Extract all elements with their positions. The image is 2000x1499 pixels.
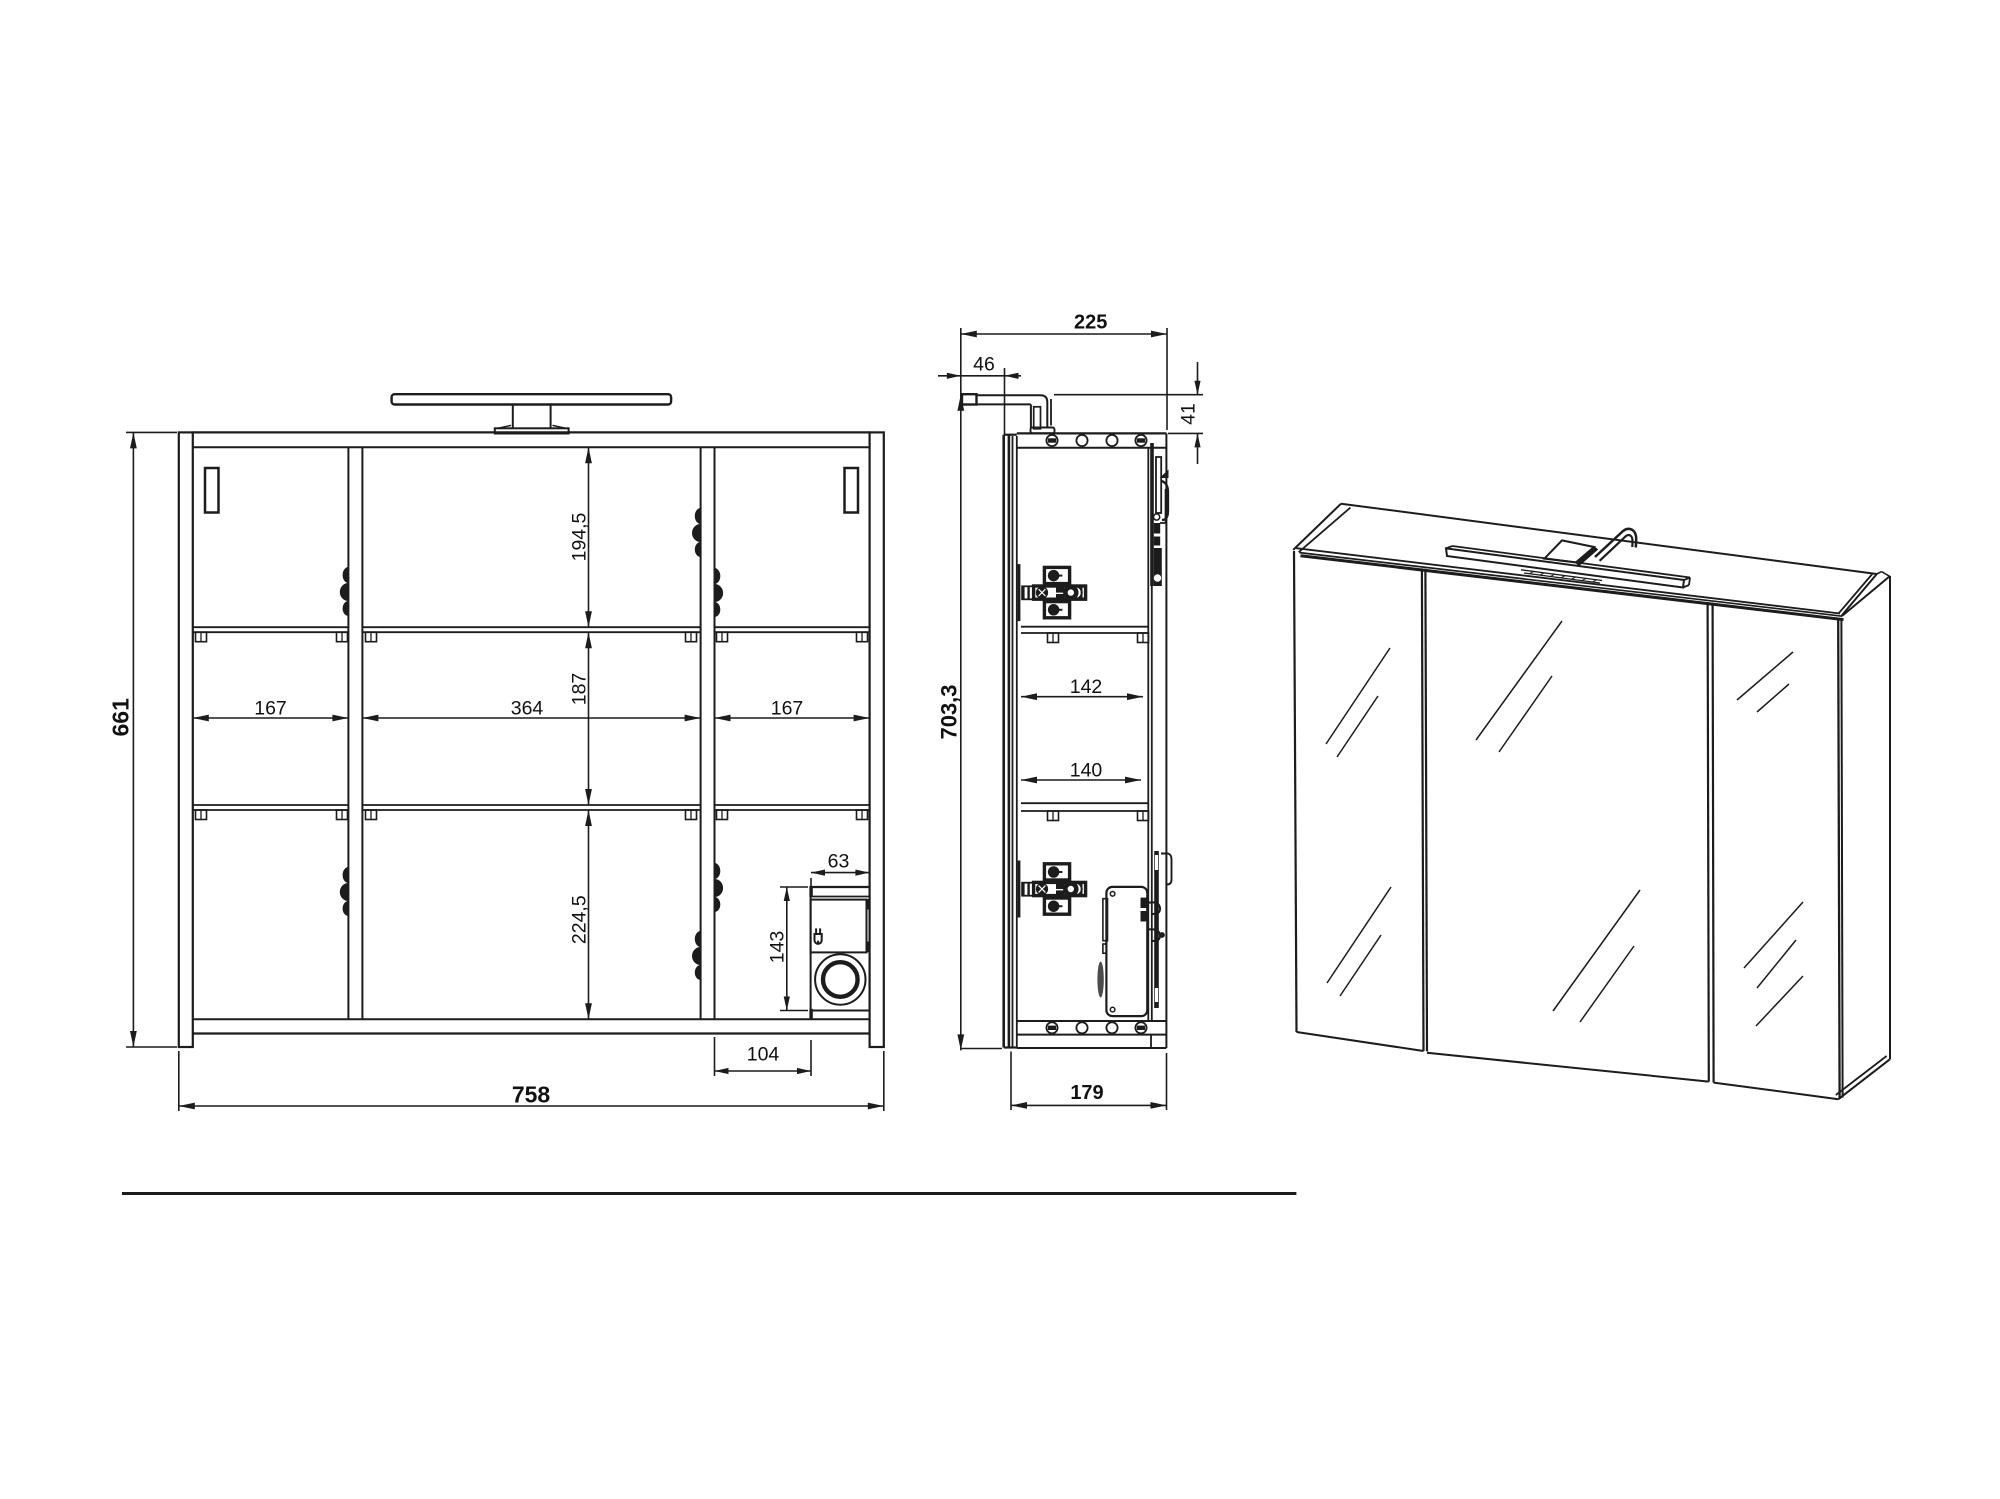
svg-text:104: 104: [747, 1044, 780, 1066]
svg-text:364: 364: [511, 698, 544, 720]
svg-text:187: 187: [569, 673, 591, 706]
svg-text:167: 167: [254, 698, 287, 720]
svg-text:167: 167: [771, 698, 804, 720]
svg-text:142: 142: [1070, 676, 1103, 698]
svg-text:661: 661: [108, 698, 134, 737]
svg-text:46: 46: [973, 354, 995, 376]
svg-text:225: 225: [1074, 312, 1107, 334]
svg-text:143: 143: [767, 931, 789, 964]
svg-text:758: 758: [512, 1082, 551, 1108]
svg-text:703,3: 703,3: [937, 684, 962, 739]
svg-text:63: 63: [828, 851, 850, 873]
svg-text:41: 41: [1178, 403, 1200, 425]
svg-text:194,5: 194,5: [569, 512, 591, 561]
svg-text:179: 179: [1070, 1082, 1103, 1104]
svg-text:140: 140: [1070, 760, 1103, 782]
svg-text:224,5: 224,5: [569, 895, 591, 944]
